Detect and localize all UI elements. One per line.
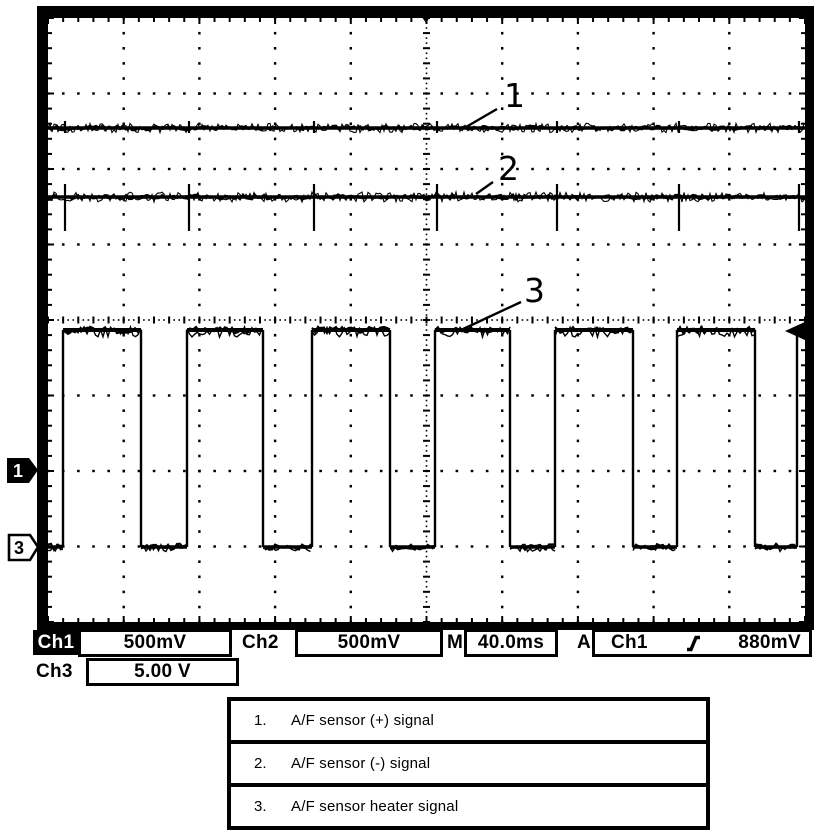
svg-text:1: 1 <box>13 461 23 481</box>
legend-row-text: A/F sensor heater signal <box>291 798 458 815</box>
legend-row: 2. A/F sensor (-) signal <box>231 740 706 783</box>
legend-row-number: 2. <box>254 755 291 772</box>
svg-text:3: 3 <box>14 538 24 558</box>
legend-row: 3. A/F sensor heater signal <box>231 783 706 826</box>
legend-row-text: A/F sensor (+) signal <box>291 712 434 729</box>
legend-row-number: 3. <box>254 798 291 815</box>
ch3-scale-box: 5.00 V <box>86 658 239 686</box>
ch3-label: Ch3 <box>36 661 73 683</box>
trace-annotations: 123 <box>461 76 545 330</box>
ch1-badge: Ch1 <box>33 630 79 655</box>
legend-row-number: 1. <box>254 712 291 729</box>
legend-table: 1. A/F sensor (+) signal 2. A/F sensor (… <box>227 697 710 830</box>
timebase-box: 40.0ms <box>464 629 558 657</box>
trigger-readout-box: Ch1 880mV <box>592 629 812 657</box>
graticule-grid <box>47 17 807 624</box>
page: 12313 Ch1 500mV Ch2 500mV M 40.0ms A Ch1… <box>0 0 832 836</box>
ch2-label: Ch2 <box>242 632 279 654</box>
timebase-label: M <box>447 632 463 654</box>
trigger-mode-label: A <box>577 632 591 654</box>
trace-label-1: 1 <box>504 76 525 115</box>
ch1-scale-box: 500mV <box>78 629 232 657</box>
trigger-level: 880mV <box>738 632 801 654</box>
legend-row-text: A/F sensor (-) signal <box>291 755 430 772</box>
trace-label-2: 2 <box>498 149 519 188</box>
legend-row: 1. A/F sensor (+) signal <box>231 701 706 740</box>
scope-markers: 13 <box>7 7 807 560</box>
ch2-scale-box: 500mV <box>295 629 443 657</box>
trace-label-3: 3 <box>524 271 545 310</box>
oscilloscope-screen: 12313 <box>0 0 832 630</box>
trigger-source: Ch1 <box>611 632 648 654</box>
rising-edge-trigger-icon <box>685 634 702 653</box>
